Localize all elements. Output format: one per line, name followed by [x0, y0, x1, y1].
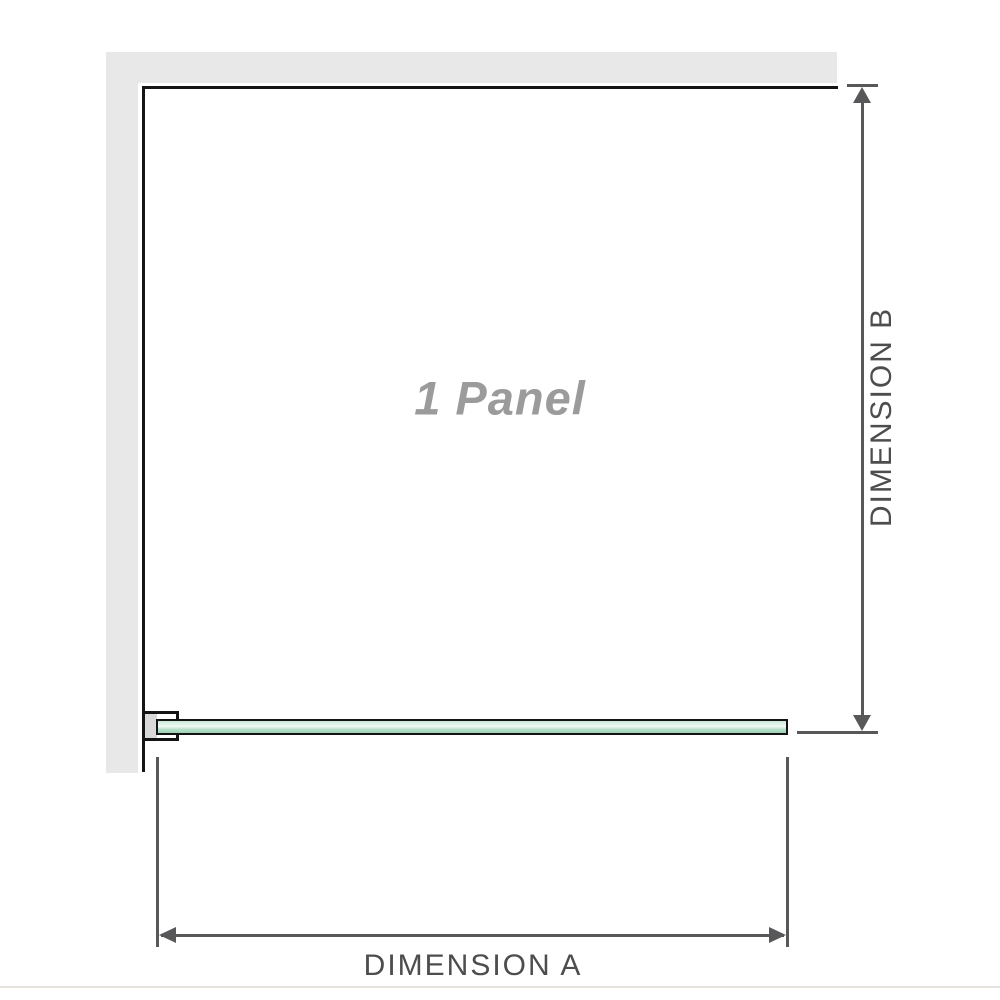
dimension-a-arrow-right-icon [769, 927, 786, 943]
panel-diagram: 1 Panel DIMENSION B DIMENSION A [0, 0, 1000, 1000]
panel-outline-left [142, 86, 145, 772]
glass-panel [156, 719, 788, 735]
page-edge-line [0, 986, 1000, 988]
dimension-b-line [861, 95, 864, 719]
panel-watermark-label: 1 Panel [414, 371, 586, 426]
dimension-a-label: DIMENSION A [364, 949, 583, 983]
dimension-a-line [161, 934, 784, 937]
dimension-a-extension-left [156, 757, 159, 947]
wall-left-band [106, 52, 138, 773]
wall-top-band [106, 52, 837, 83]
dimension-b-tick-bottom [797, 731, 878, 734]
dimension-a-arrow-left-icon [159, 927, 176, 943]
panel-outline-top [142, 86, 838, 89]
dimension-a-extension-right [786, 757, 789, 947]
dimension-b-label: DIMENSION B [865, 307, 899, 527]
dimension-b-arrow-down-icon [853, 715, 871, 731]
